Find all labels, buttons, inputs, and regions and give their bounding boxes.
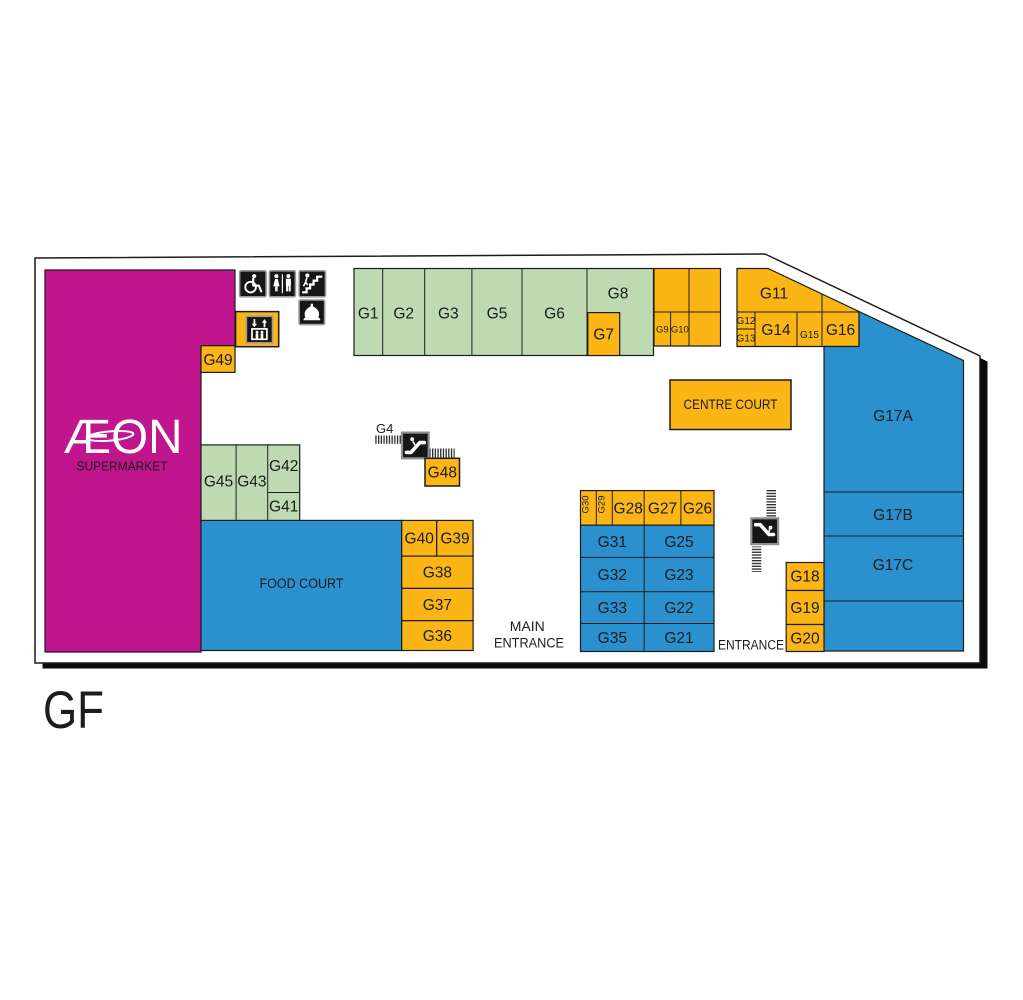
svg-text:G48: G48 — [428, 465, 457, 482]
svg-text:ENTRANCE: ENTRANCE — [494, 635, 564, 651]
svg-text:G8: G8 — [608, 286, 629, 303]
svg-text:G19: G19 — [790, 600, 819, 617]
svg-text:G17B: G17B — [873, 507, 913, 524]
svg-text:G22: G22 — [664, 600, 693, 617]
svg-text:ÆON: ÆON — [64, 411, 183, 464]
svg-text:G45: G45 — [204, 474, 233, 491]
svg-text:G17A: G17A — [873, 408, 913, 425]
svg-text:GF: GF — [43, 681, 104, 740]
svg-text:ENTRANCE: ENTRANCE — [718, 638, 784, 653]
svg-text:G2: G2 — [393, 306, 414, 323]
svg-text:G32: G32 — [598, 567, 627, 584]
svg-text:G42: G42 — [269, 458, 298, 475]
svg-text:G20: G20 — [790, 631, 820, 648]
svg-text:MAIN: MAIN — [510, 618, 545, 634]
svg-text:G23: G23 — [664, 567, 693, 584]
svg-text:G40: G40 — [405, 531, 435, 548]
svg-text:G1: G1 — [358, 306, 379, 323]
svg-text:CENTRE COURT: CENTRE COURT — [684, 396, 778, 412]
svg-text:G39: G39 — [440, 531, 469, 548]
svg-text:G12: G12 — [737, 316, 756, 327]
svg-text:G15: G15 — [800, 330, 819, 341]
svg-text:G6: G6 — [544, 306, 565, 323]
svg-text:G11: G11 — [760, 286, 788, 303]
svg-text:G14: G14 — [761, 322, 791, 339]
svg-text:G17C: G17C — [873, 557, 914, 574]
svg-text:FOOD COURT: FOOD COURT — [260, 576, 344, 591]
svg-text:G21: G21 — [664, 630, 693, 647]
svg-text:G30: G30 — [581, 496, 592, 514]
svg-text:G13: G13 — [737, 334, 756, 345]
svg-text:G27: G27 — [648, 501, 677, 518]
svg-text:G33: G33 — [598, 600, 627, 617]
svg-text:G16: G16 — [826, 322, 855, 339]
svg-text:G28: G28 — [614, 501, 643, 518]
svg-text:SUPERMARKET: SUPERMARKET — [77, 460, 168, 474]
svg-text:G36: G36 — [423, 628, 452, 645]
svg-text:G37: G37 — [423, 597, 452, 614]
svg-text:G31: G31 — [598, 534, 627, 551]
svg-text:G3: G3 — [438, 306, 459, 323]
svg-text:G41: G41 — [269, 499, 298, 516]
svg-text:G7: G7 — [593, 327, 614, 344]
svg-text:G26: G26 — [683, 501, 712, 518]
svg-text:G10: G10 — [671, 325, 689, 336]
svg-text:G29: G29 — [597, 496, 608, 514]
svg-text:G9: G9 — [656, 325, 669, 336]
svg-text:G49: G49 — [203, 352, 232, 369]
svg-text:G38: G38 — [423, 565, 452, 582]
svg-text:G35: G35 — [598, 630, 627, 647]
svg-text:G43: G43 — [237, 474, 266, 491]
svg-text:G18: G18 — [790, 569, 819, 586]
svg-text:G25: G25 — [664, 534, 693, 551]
svg-text:G4: G4 — [376, 421, 393, 436]
svg-text:G5: G5 — [487, 306, 508, 323]
